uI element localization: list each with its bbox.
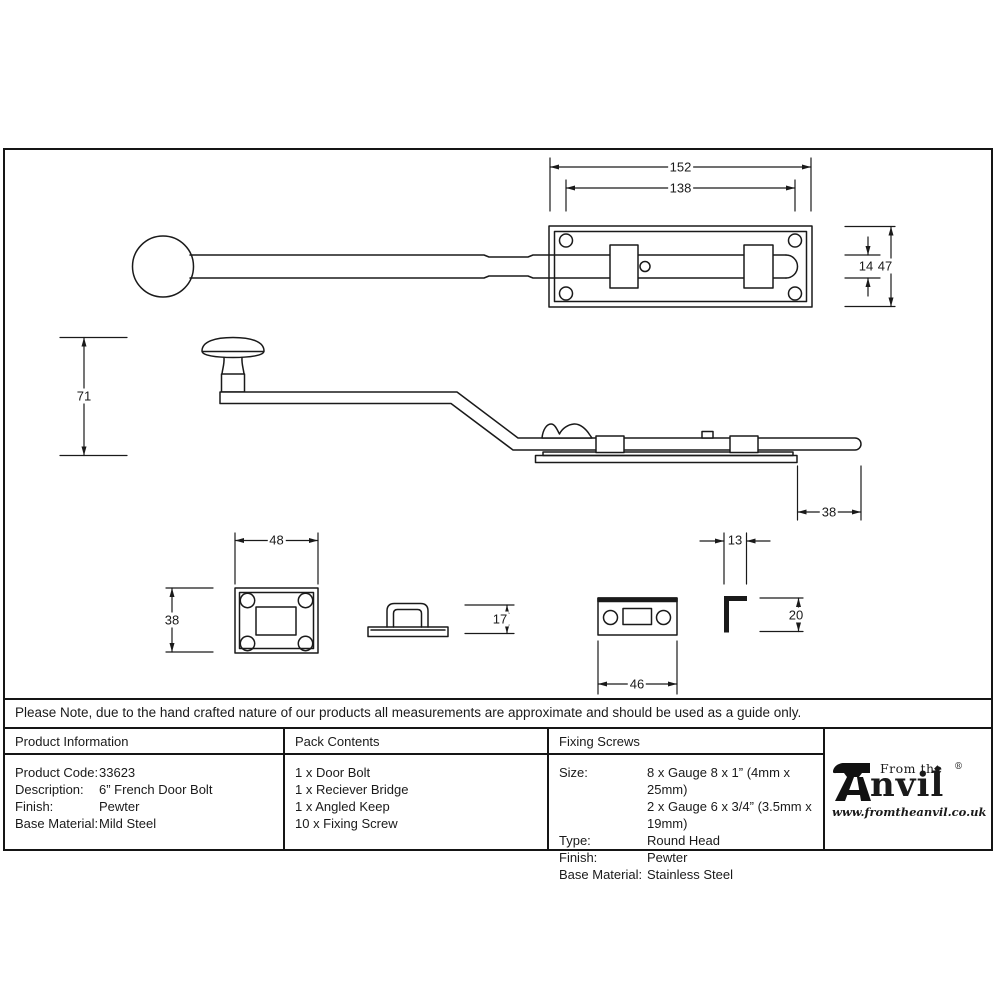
dim-bolt-throw-label: 38 [820,505,838,520]
measurement-note: Please Note, due to the hand crafted nat… [3,698,993,729]
row-label: Finish: [15,798,99,815]
row-label: Product Code: [15,764,99,781]
row-value: Pewter [99,798,139,815]
row-label: Base Material: [559,866,647,883]
row-value: Stainless Steel [647,866,733,883]
row-value: Round Head [647,832,720,849]
dim-hole-spacing-label: 138 [668,181,694,196]
dim-plate-width-label: 152 [668,160,694,175]
pack-item: 10 x Fixing Screw [295,815,539,832]
dim-bolt-width-label: 14 [857,259,875,274]
dim-flat-keep-width-label: 46 [628,677,646,692]
product-information-column: Product Information Product Code: 33623 … [5,729,285,849]
dim-bridge-height-label: 17 [491,612,509,627]
dim-knob-height-label: 71 [75,389,93,404]
anvil-icon [832,759,872,803]
row-value: 2 x Gauge 6 x 3/4” (3.5mm x 19mm) [647,798,815,832]
dim-keep-plate-height-label: 38 [163,613,181,628]
row-value: 6” French Door Bolt [99,781,212,798]
logo-url: www.fromtheanvil.co.uk [832,805,984,819]
pack-item: 1 x Angled Keep [295,798,539,815]
pack-contents-column: Pack Contents 1 x Door Bolt 1 x Reciever… [285,729,549,849]
pack-item: 1 x Reciever Bridge [295,781,539,798]
product-information-header: Product Information [5,729,283,755]
table-row: Product Code: 33623 [15,764,275,781]
registered-trademark: ® [954,762,963,772]
logo-cell: From the ◆ nvil ® www.fromtheanvil.co.uk [825,729,991,849]
row-value: 8 x Gauge 8 x 1” (4mm x 25mm) [647,764,815,798]
row-value: Pewter [647,849,687,866]
table-row: Size: 8 x Gauge 8 x 1” (4mm x 25mm) [559,764,815,798]
fixing-screws-column: Fixing Screws Size: 8 x Gauge 8 x 1” (4m… [549,729,825,849]
row-value: Mild Steel [99,815,156,832]
row-label: Base Material: [15,815,99,832]
dim-angled-keep-height-label: 20 [787,608,805,623]
measurement-note-text: Please Note, due to the hand crafted nat… [15,705,801,720]
pack-item: 1 x Door Bolt [295,764,539,781]
row-label: Size: [559,764,647,798]
pack-contents-header: Pack Contents [285,729,547,755]
table-row: Finish: Pewter [559,849,815,866]
row-label [559,798,647,832]
logo-name: nvil [870,769,944,802]
table-row: 2 x Gauge 6 x 3/4” (3.5mm x 19mm) [559,798,815,832]
fixing-screws-header: Fixing Screws [549,729,823,755]
anvil-logo: From the ◆ nvil ® www.fromtheanvil.co.uk [832,758,984,820]
row-label: Type: [559,832,647,849]
table-row: Base Material: Stainless Steel [559,866,815,883]
table-row: Base Material: Mild Steel [15,815,275,832]
dim-plate-height-label: 47 [876,259,894,274]
row-label: Description: [15,781,99,798]
table-row: Finish: Pewter [15,798,275,815]
table-row: Description: 6” French Door Bolt [15,781,275,798]
row-value: 33623 [99,764,135,781]
dim-angled-keep-width-label: 13 [726,533,744,548]
product-info-table: Product Information Product Code: 33623 … [3,727,993,851]
dim-keep-plate-width-label: 48 [267,533,285,548]
row-label: Finish: [559,849,647,866]
table-row: Type: Round Head [559,832,815,849]
